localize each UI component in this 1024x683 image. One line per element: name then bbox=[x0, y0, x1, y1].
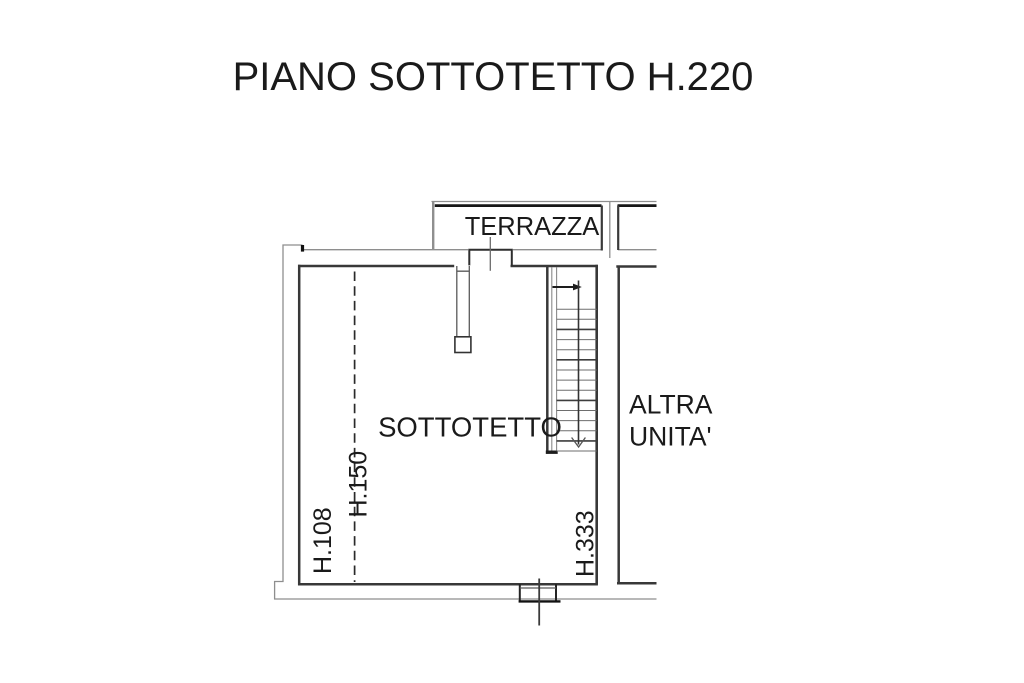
svg-text:PIANO SOTTOTETTO H.220: PIANO SOTTOTETTO H.220 bbox=[233, 55, 754, 99]
svg-text:H.108: H.108 bbox=[309, 507, 337, 574]
svg-text:UNITA': UNITA' bbox=[629, 422, 712, 452]
svg-text:H.333: H.333 bbox=[572, 510, 600, 577]
svg-text:ALTRA: ALTRA bbox=[629, 390, 713, 420]
svg-text:TERRAZZA: TERRAZZA bbox=[465, 213, 600, 241]
svg-text:SOTTOTETTO: SOTTOTETTO bbox=[378, 411, 562, 442]
svg-text:H.150: H.150 bbox=[345, 451, 373, 518]
